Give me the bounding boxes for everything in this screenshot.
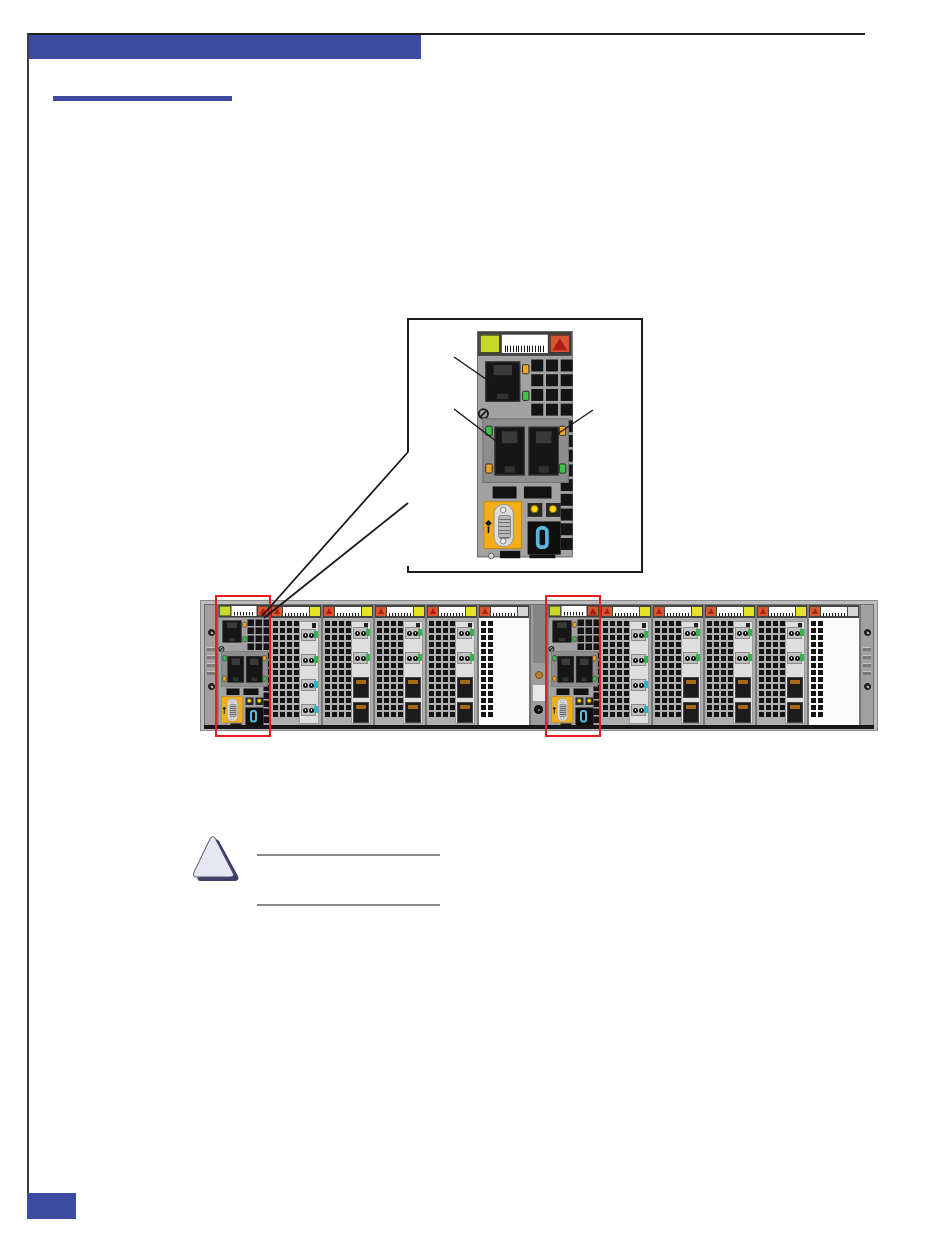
vent-hole [759, 705, 764, 710]
vent-hole [603, 649, 608, 654]
vent-hole [273, 698, 278, 703]
divider-recess [533, 605, 545, 663]
vent-hole [332, 663, 337, 668]
vent-grid [759, 621, 785, 717]
vent-hole [610, 698, 615, 703]
service-ethernet-port [485, 361, 520, 401]
vent-hole [436, 684, 441, 689]
vent-hole [384, 635, 389, 640]
vent-hole [332, 649, 337, 654]
yellow-led-icon [546, 503, 561, 517]
vent-hole [287, 628, 292, 633]
vent-hole [707, 628, 712, 633]
vent-hole [280, 649, 285, 654]
vent-hole [669, 705, 674, 710]
vent-hole [617, 698, 622, 703]
screw-icon [864, 683, 871, 690]
ethernet-port [457, 702, 473, 723]
vent-hole [377, 635, 382, 640]
vent-hole [707, 712, 712, 717]
vent-hole [773, 712, 778, 717]
vent-hole [603, 642, 608, 647]
vent-hole [707, 705, 712, 710]
vent-hole [610, 649, 615, 654]
vent-hole [287, 691, 292, 696]
vent-hole [488, 649, 493, 654]
combo-port-panel [351, 621, 371, 724]
vent-hole [773, 656, 778, 661]
port-tag-led [418, 654, 422, 661]
port-tag-led [696, 654, 700, 661]
db9-pins [498, 515, 511, 539]
vent-grid [273, 621, 299, 717]
vent-hole [811, 656, 816, 661]
vent-hole [384, 656, 389, 661]
vent-hole [610, 691, 615, 696]
vent-hole [488, 663, 493, 668]
vent-hole [546, 389, 558, 401]
vent-hole [655, 649, 660, 654]
vent-hole [707, 677, 712, 682]
vent-hole [436, 705, 441, 710]
ethernet-port [787, 677, 803, 698]
barcode-label [439, 607, 465, 616]
vent-hole [759, 712, 764, 717]
vent-hole [655, 642, 660, 647]
vent-hole [488, 628, 493, 633]
vent-hole [339, 628, 344, 633]
ear-ridge [207, 655, 215, 659]
blank-socket [529, 555, 555, 559]
vent-hole [325, 663, 330, 668]
port-tag-led [748, 654, 752, 661]
port-tag-led [470, 654, 474, 661]
vent-hole [546, 404, 558, 416]
vent-hole [273, 712, 278, 717]
port-tag-led [366, 654, 370, 661]
port-tag-led [418, 629, 422, 636]
vent-hole [429, 656, 434, 661]
vent-grid [377, 621, 403, 717]
vent-hole [811, 621, 816, 626]
vent-hole [721, 663, 726, 668]
vent-hole [339, 670, 344, 675]
vent-hole [384, 621, 389, 626]
vent-hole [818, 677, 823, 682]
vent-hole [429, 628, 434, 633]
vent-hole [332, 670, 337, 675]
controller-module-detail [477, 331, 573, 557]
vent-hole [818, 691, 823, 696]
vent-hole [714, 698, 719, 703]
vent-hole [339, 698, 344, 703]
vent-grid [655, 621, 681, 717]
vent-hole [818, 684, 823, 689]
section-heading-underline [53, 96, 232, 101]
vent-hole [391, 635, 396, 640]
vent-hole [714, 705, 719, 710]
vent-hole [617, 621, 622, 626]
vent-hole [280, 677, 285, 682]
green-led-icon [559, 463, 566, 473]
vent-hole [377, 663, 382, 668]
vent-hole [766, 684, 771, 689]
port-tag-led [314, 656, 318, 663]
ear-ridge [863, 663, 871, 667]
warning-triangle-icon [428, 607, 438, 616]
warning-triangle-icon [602, 607, 612, 616]
vent-hole [766, 705, 771, 710]
vent-hole [773, 670, 778, 675]
vent-hole [339, 656, 344, 661]
vent-hole [325, 691, 330, 696]
warning-triangle-icon [654, 607, 664, 616]
screw-icon [864, 629, 871, 636]
warning-triangle-icon [272, 607, 282, 616]
vent-hole [332, 705, 337, 710]
vent-hole [280, 712, 285, 717]
ethernet-port [353, 677, 369, 698]
vent-hole [488, 712, 493, 717]
vent-hole [669, 656, 674, 661]
vent-hole [339, 635, 344, 640]
vent-hole [721, 635, 726, 640]
ear-ridge [863, 671, 871, 675]
vent-hole [391, 628, 396, 633]
status-square [692, 607, 702, 616]
vent-hole [280, 642, 285, 647]
screw-icon [208, 683, 215, 690]
controller-module-face [477, 331, 573, 557]
vent-hole [391, 698, 396, 703]
vent-hole [443, 712, 448, 717]
port-tag-led [470, 629, 474, 636]
vent-hole [714, 649, 719, 654]
vent-hole [617, 663, 622, 668]
vent-hole [561, 374, 573, 386]
vent-hole [436, 670, 441, 675]
note-rule-top [257, 854, 440, 856]
vent-hole [325, 705, 330, 710]
vent-hole [811, 642, 816, 647]
vent-hole [610, 712, 615, 717]
ethernet-port [787, 702, 803, 723]
io-module-filler-right-5 [808, 604, 860, 727]
vent-hole [669, 712, 674, 717]
vent-hole [273, 642, 278, 647]
vent-hole [655, 628, 660, 633]
port-tag-led [314, 706, 318, 713]
vent-hole [436, 621, 441, 626]
vent-hole [325, 670, 330, 675]
vent-hole [287, 656, 292, 661]
vent-hole [811, 677, 816, 682]
vent-hole [603, 712, 608, 717]
vent-hole [669, 621, 674, 626]
vent-hole [811, 649, 816, 654]
vent-hole [766, 712, 771, 717]
module-header [479, 605, 529, 618]
vent-hole [280, 628, 285, 633]
page-number-box [27, 1193, 76, 1219]
vent-hole [766, 642, 771, 647]
vent-hole [561, 494, 573, 506]
vent-hole [617, 691, 622, 696]
vent-hole [617, 670, 622, 675]
vent-hole [377, 712, 382, 717]
screw-icon [208, 629, 215, 636]
vent-hole [339, 642, 344, 647]
vent-hole [443, 684, 448, 689]
document-page: { "page": { "kind": "hardware-manual-fig… [0, 0, 950, 1241]
vent-hole [377, 670, 382, 675]
vent-hole [811, 684, 816, 689]
vent-hole [662, 656, 667, 661]
vent-hole [429, 698, 434, 703]
vent-hole [332, 677, 337, 682]
vent-hole [707, 656, 712, 661]
warning-triangle-icon [706, 607, 716, 616]
vent-hole [391, 677, 396, 682]
vent-hole [443, 628, 448, 633]
vent-hole [273, 635, 278, 640]
barcode-label [283, 607, 309, 616]
vent-hole [714, 677, 719, 682]
vent-hole [429, 642, 434, 647]
fiber-port-panel [629, 621, 649, 724]
vent-hole [707, 635, 712, 640]
vent-hole [287, 698, 292, 703]
vent-hole [669, 642, 674, 647]
vent-hole [610, 628, 615, 633]
vent-hole [339, 663, 344, 668]
vent-hole [766, 698, 771, 703]
vent-hole [617, 635, 622, 640]
vent-hole [332, 698, 337, 703]
vent-hole [287, 663, 292, 668]
vent-hole [287, 642, 292, 647]
vent-hole [436, 698, 441, 703]
vent-hole [669, 635, 674, 640]
vent-hole [603, 670, 608, 675]
barcode-label [387, 607, 413, 616]
vent-hole [759, 684, 764, 689]
vent-hole [714, 670, 719, 675]
port-tag-led [366, 629, 370, 636]
vent-hole [481, 649, 486, 654]
vent-hole [655, 684, 660, 689]
vent-hole [443, 656, 448, 661]
barcode-label [502, 335, 548, 353]
vent-hole [391, 642, 396, 647]
chassis-row [204, 604, 874, 727]
vent-hole [617, 684, 622, 689]
vent-hole [721, 621, 726, 626]
vent-hole [610, 635, 615, 640]
vent-grid [603, 621, 629, 717]
vent-hole [669, 691, 674, 696]
vent-hole [561, 509, 573, 521]
vent-hole [707, 684, 712, 689]
io-module-fiber-quad-left-1 [270, 604, 322, 727]
vent-hole [773, 684, 778, 689]
vent-hole [662, 642, 667, 647]
vent-hole [707, 663, 712, 668]
vent-hole [662, 635, 667, 640]
green-led-icon [485, 426, 492, 436]
vent-hole [429, 670, 434, 675]
yellow-led-icon [528, 503, 543, 517]
vent-hole [273, 684, 278, 689]
vent-grid [811, 621, 823, 717]
vent-hole [280, 656, 285, 661]
vent-hole [531, 374, 543, 386]
vent-hole [714, 635, 719, 640]
vent-grid [531, 360, 572, 416]
vent-hole [325, 642, 330, 647]
vent-hole [273, 621, 278, 626]
vent-hole [339, 691, 344, 696]
io-module-filler-left-5 [478, 604, 530, 727]
vent-grid [325, 621, 351, 717]
vent-hole [662, 677, 667, 682]
barcode-label [717, 607, 743, 616]
vent-hole [818, 628, 823, 633]
vent-hole [377, 656, 382, 661]
vent-grid [707, 621, 733, 717]
vent-hole [759, 691, 764, 696]
blank-socket [500, 551, 520, 558]
vent-hole [429, 635, 434, 640]
warning-triangle-icon [758, 607, 768, 616]
vent-hole [811, 698, 816, 703]
vent-hole [384, 712, 389, 717]
ethernet-port [457, 677, 473, 698]
vent-hole [707, 621, 712, 626]
lan-ethernet-port-right [529, 427, 559, 476]
vent-hole [325, 628, 330, 633]
vent-hole [384, 642, 389, 647]
vent-hole [721, 684, 726, 689]
vent-hole [811, 705, 816, 710]
vent-hole [669, 677, 674, 682]
vent-hole [610, 677, 615, 682]
highlight-box-left-controller [215, 595, 271, 737]
status-square [640, 607, 650, 616]
port-tag-led [314, 631, 318, 638]
vent-hole [481, 698, 486, 703]
vent-hole [273, 691, 278, 696]
vent-hole [391, 691, 396, 696]
vent-hole [384, 691, 389, 696]
vent-hole [766, 670, 771, 675]
vent-hole [384, 677, 389, 682]
vent-hole [773, 628, 778, 633]
combo-port-panel [455, 621, 475, 724]
vent-hole [655, 635, 660, 640]
vent-hole [443, 649, 448, 654]
port-tag-led [800, 629, 804, 636]
vent-hole [280, 621, 285, 626]
wrench-icon [484, 520, 492, 534]
vent-hole [818, 656, 823, 661]
port-glyph [642, 623, 646, 628]
ear-ridge [207, 647, 215, 651]
vent-hole [488, 677, 493, 682]
vent-hole [773, 635, 778, 640]
vent-hole [339, 621, 344, 626]
vent-hole [617, 649, 622, 654]
vent-hole [603, 635, 608, 640]
vent-hole [443, 670, 448, 675]
vent-hole [280, 698, 285, 703]
vent-hole [759, 656, 764, 661]
vent-hole [603, 691, 608, 696]
port-tag-led [644, 706, 648, 713]
vent-hole [714, 642, 719, 647]
module-header [757, 605, 807, 618]
vent-hole [617, 712, 622, 717]
vent-hole [818, 712, 823, 717]
vent-hole [377, 691, 382, 696]
vent-hole [603, 628, 608, 633]
status-square [310, 607, 320, 616]
vent-hole [481, 663, 486, 668]
vent-hole [766, 635, 771, 640]
vent-hole [481, 635, 486, 640]
vent-hole [655, 691, 660, 696]
vent-hole [561, 389, 573, 401]
ear-ridge [863, 647, 871, 651]
blank-socket [524, 486, 552, 498]
io-module-fiber-combo-right-3 [704, 604, 756, 727]
vent-hole [721, 642, 726, 647]
io-module-fiber-combo-right-2 [652, 604, 704, 727]
green-status-square [480, 335, 500, 353]
highlight-box-right-controller [545, 595, 601, 737]
vent-hole [766, 628, 771, 633]
vent-hole [325, 635, 330, 640]
combo-port-panel [785, 621, 805, 724]
warning-triangle-icon [550, 335, 570, 353]
vent-hole [443, 698, 448, 703]
vent-hole [610, 684, 615, 689]
divider-label [533, 685, 545, 701]
vent-hole [603, 705, 608, 710]
ethernet-port [405, 677, 421, 698]
vent-hole [377, 649, 382, 654]
vent-hole [436, 649, 441, 654]
vent-hole [759, 621, 764, 626]
vent-hole [429, 705, 434, 710]
vent-hole [384, 628, 389, 633]
vent-hole [818, 635, 823, 640]
vent-hole [707, 670, 712, 675]
vent-hole [662, 698, 667, 703]
vent-hole [714, 621, 719, 626]
vent-hole [436, 712, 441, 717]
vent-hole [669, 670, 674, 675]
vent-hole [384, 663, 389, 668]
status-square [518, 607, 528, 616]
vent-hole [280, 691, 285, 696]
vent-hole [669, 684, 674, 689]
module-header [427, 605, 477, 618]
vent-hole [436, 663, 441, 668]
vent-hole [325, 677, 330, 682]
vent-hole [811, 628, 816, 633]
vent-hole [759, 663, 764, 668]
